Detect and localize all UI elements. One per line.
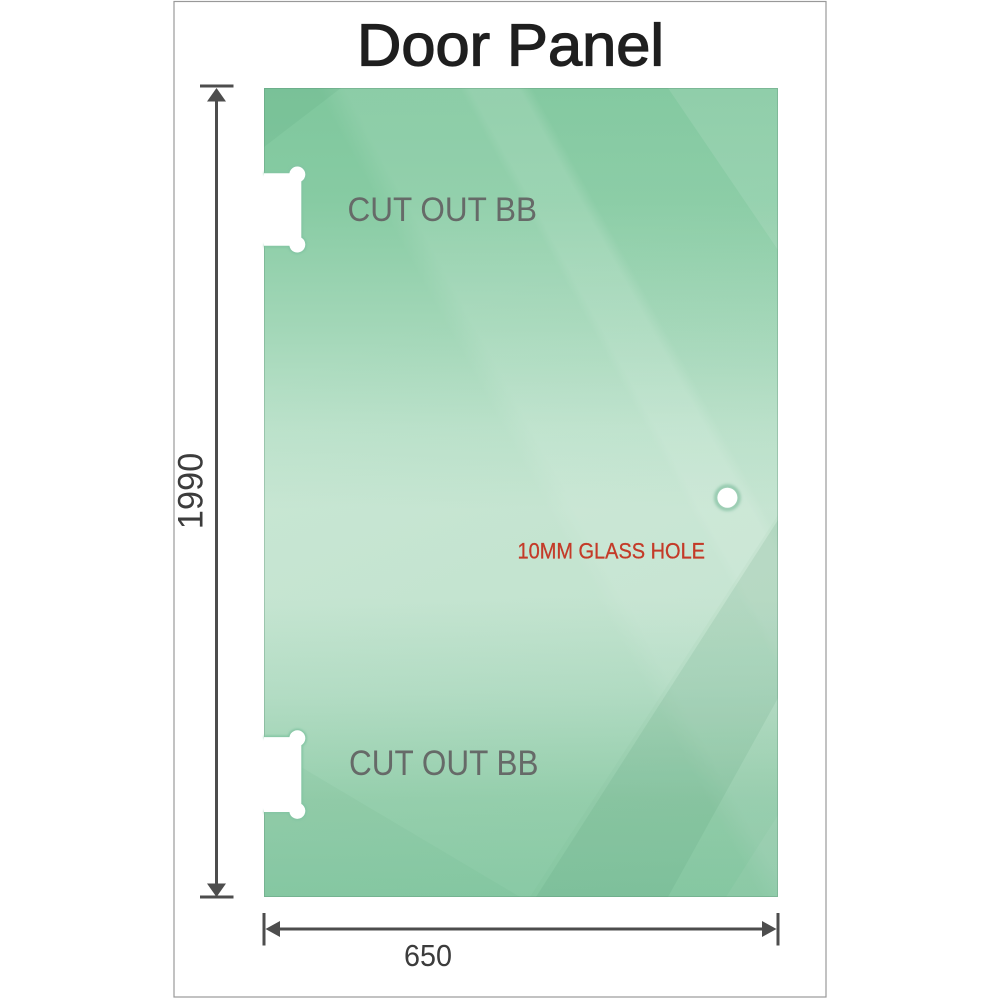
svg-text:650: 650 — [404, 938, 452, 973]
svg-text:1990: 1990 — [172, 453, 211, 530]
svg-text:CUT OUT BB: CUT OUT BB — [349, 744, 539, 783]
svg-text:CUT OUT BB: CUT OUT BB — [348, 191, 538, 229]
svg-text:Door Panel: Door Panel — [357, 12, 664, 79]
svg-text:10MM GLASS HOLE: 10MM GLASS HOLE — [518, 539, 706, 564]
